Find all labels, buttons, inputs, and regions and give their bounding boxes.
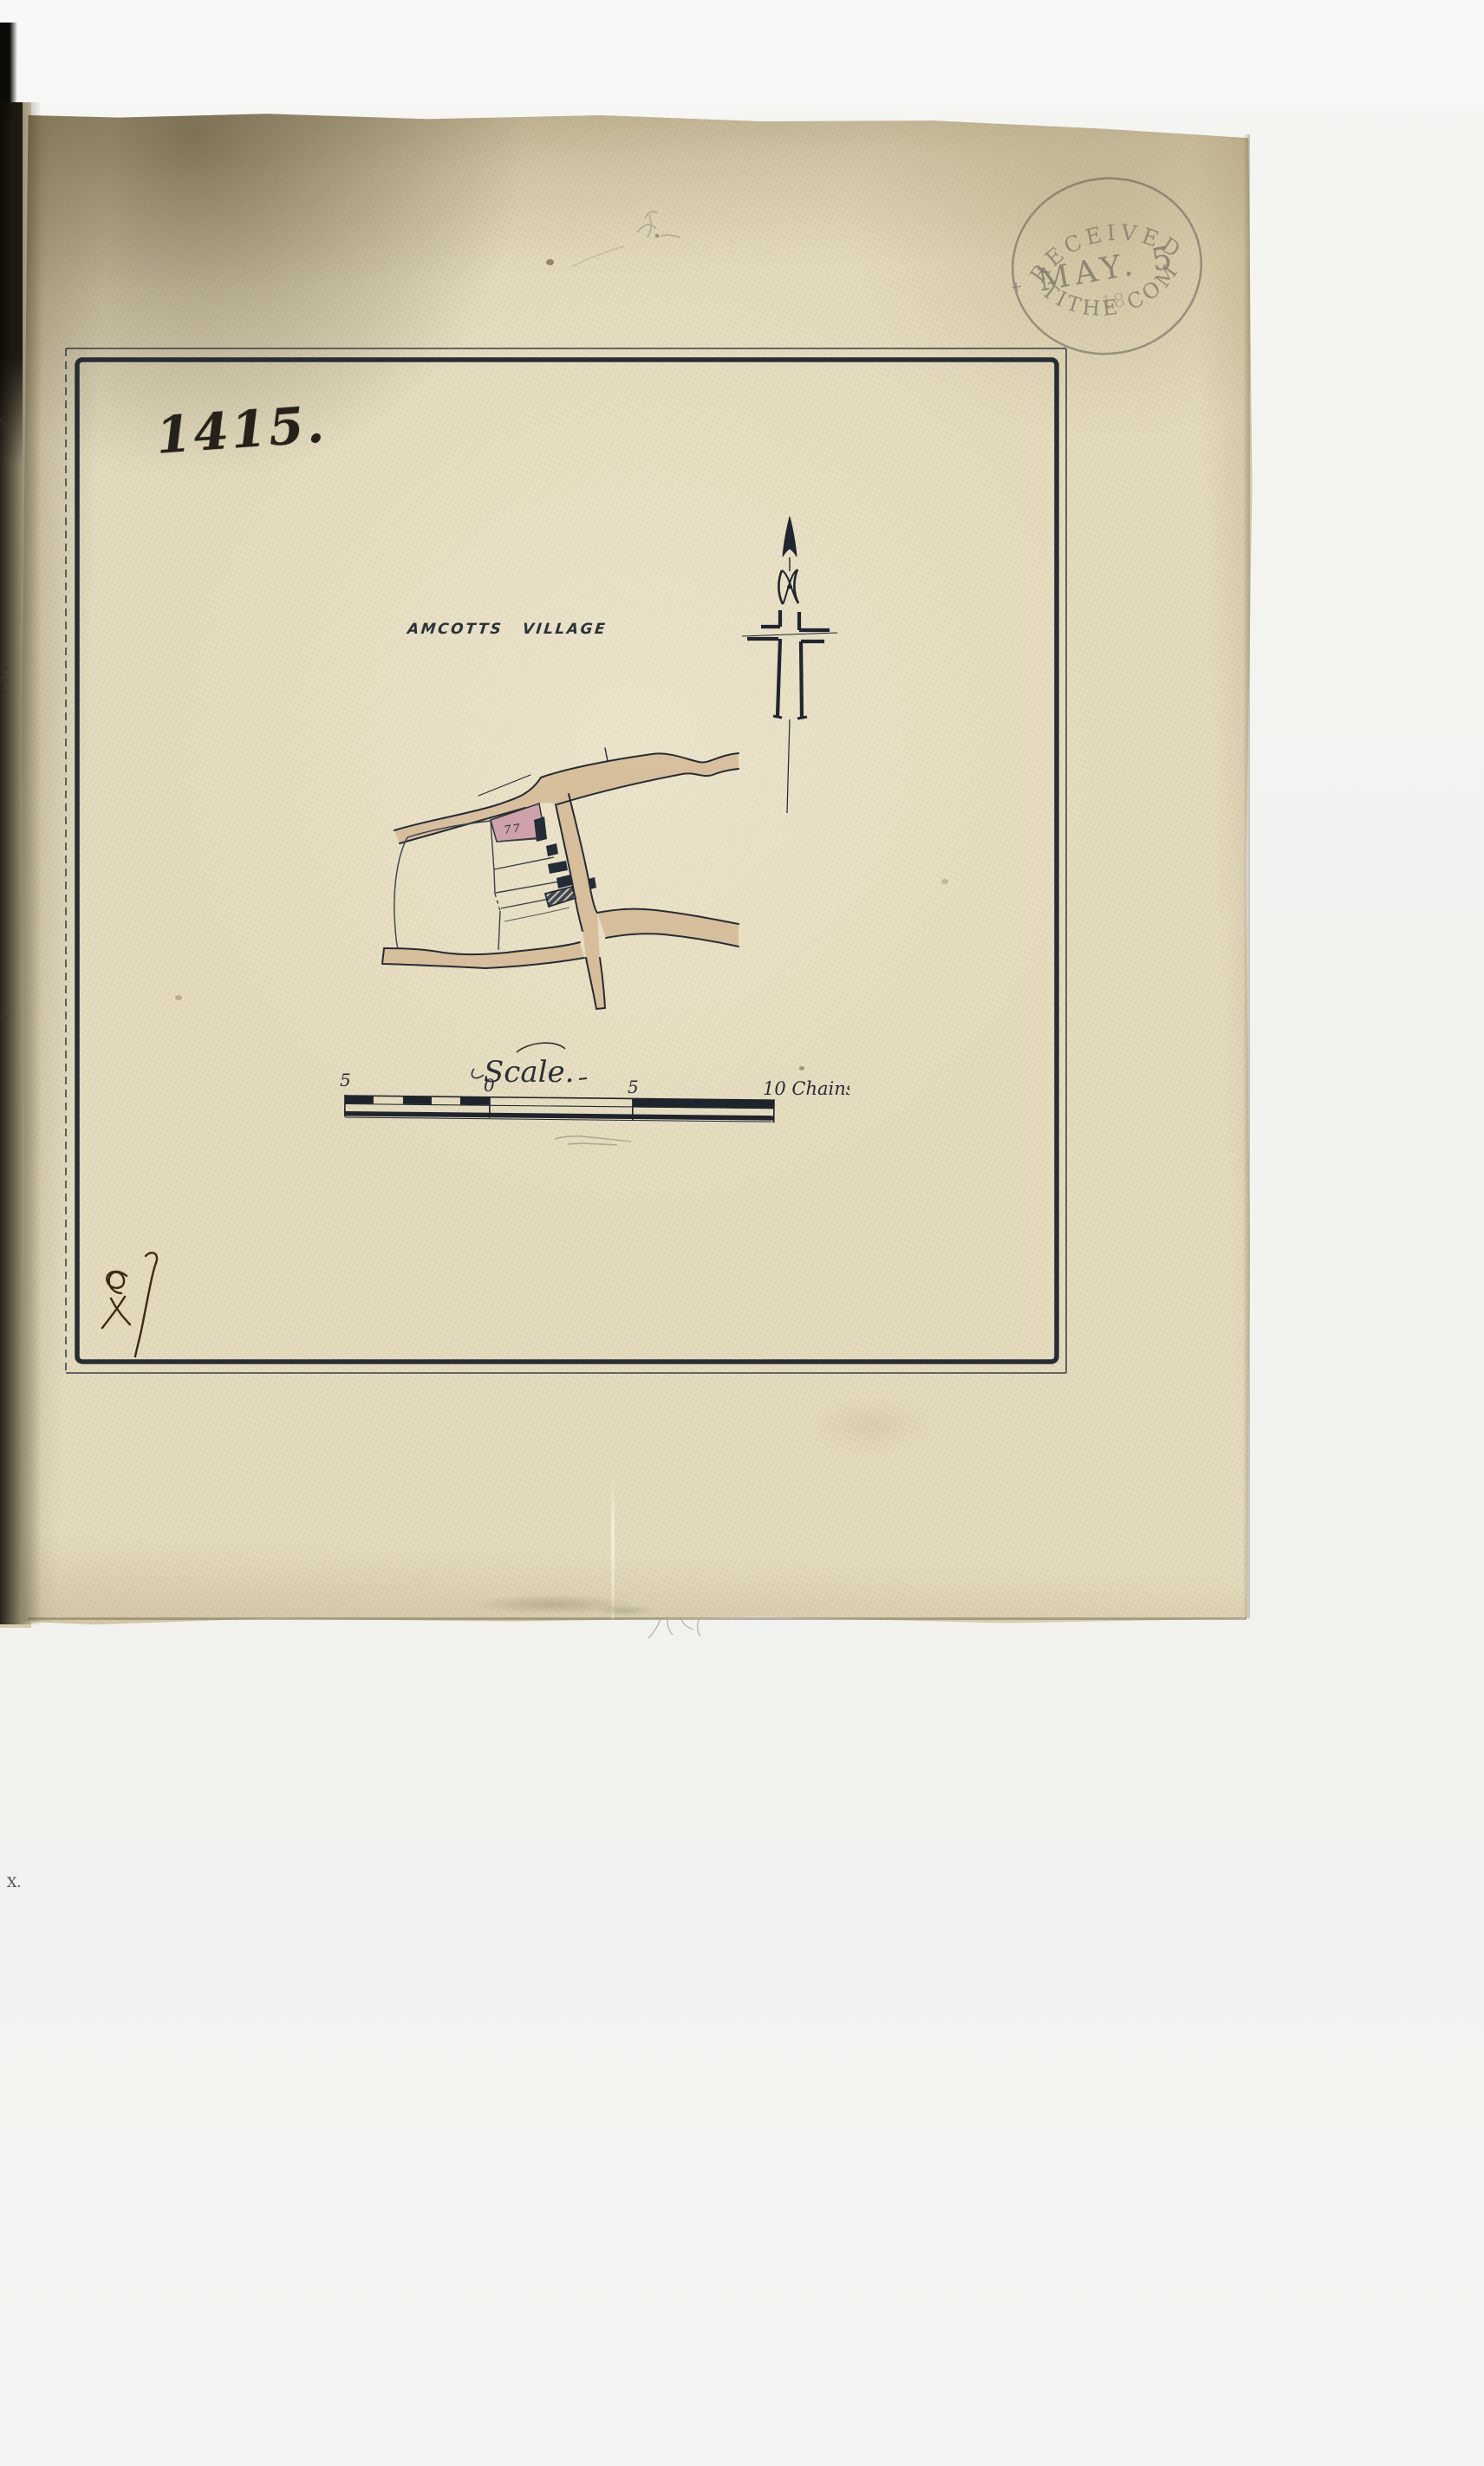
scale-tick-zero: 0: [484, 1075, 495, 1096]
north-arrowhead: [783, 517, 797, 556]
north-ornament: [778, 569, 798, 604]
underpage-print-mark: X.: [7, 1874, 21, 1890]
faint-stain: [806, 1396, 936, 1456]
scale-unit-label: 10 Chains: [763, 1078, 849, 1099]
stamp-side-mark: +: [1009, 277, 1025, 296]
village-plan-drawing: 77: [364, 728, 763, 1031]
hatched-building: [545, 887, 576, 907]
foxing-spot: [175, 995, 182, 1000]
scale-tick-mid: 5: [628, 1077, 639, 1097]
sheet-number: 1415.: [154, 394, 329, 465]
parcel-lines: [394, 821, 570, 950]
plot-number-marks: 77: [503, 822, 522, 837]
scale-flourish: [517, 1043, 565, 1052]
pencil-scribble: [546, 199, 719, 286]
ink-dot: [799, 1066, 804, 1070]
parchment-right-edge-shadow: [1243, 134, 1250, 1618]
tithe-office-received-stamp: RECEIVED MAY. 5 18 TITHE COM +: [980, 152, 1240, 386]
scale-script-label: Scale.: [484, 1055, 574, 1090]
scale-bar-group: Scale. 5 0 5 10 Chains: [329, 1031, 849, 1157]
scale-bar: [345, 1095, 774, 1122]
ink-fleck: [546, 259, 554, 265]
green-tinge-smudge: [596, 1605, 652, 1616]
parchment-edge-fibers: [624, 1612, 797, 1651]
village-name-label: AMCOTTS VILLAGE: [407, 621, 608, 638]
scanned-tithe-map-page: 1415. AMCOTTS VILLAGE: [0, 0, 1484, 2466]
graphite-smudge: [555, 1136, 631, 1145]
underpage-print-fragments: [0, 390, 35, 1083]
cross-glyph: [747, 610, 830, 719]
handwritten-flourish-mark: [82, 1235, 178, 1365]
scale-tick-left: 5: [340, 1070, 351, 1090]
foxing-spot: [941, 879, 948, 884]
